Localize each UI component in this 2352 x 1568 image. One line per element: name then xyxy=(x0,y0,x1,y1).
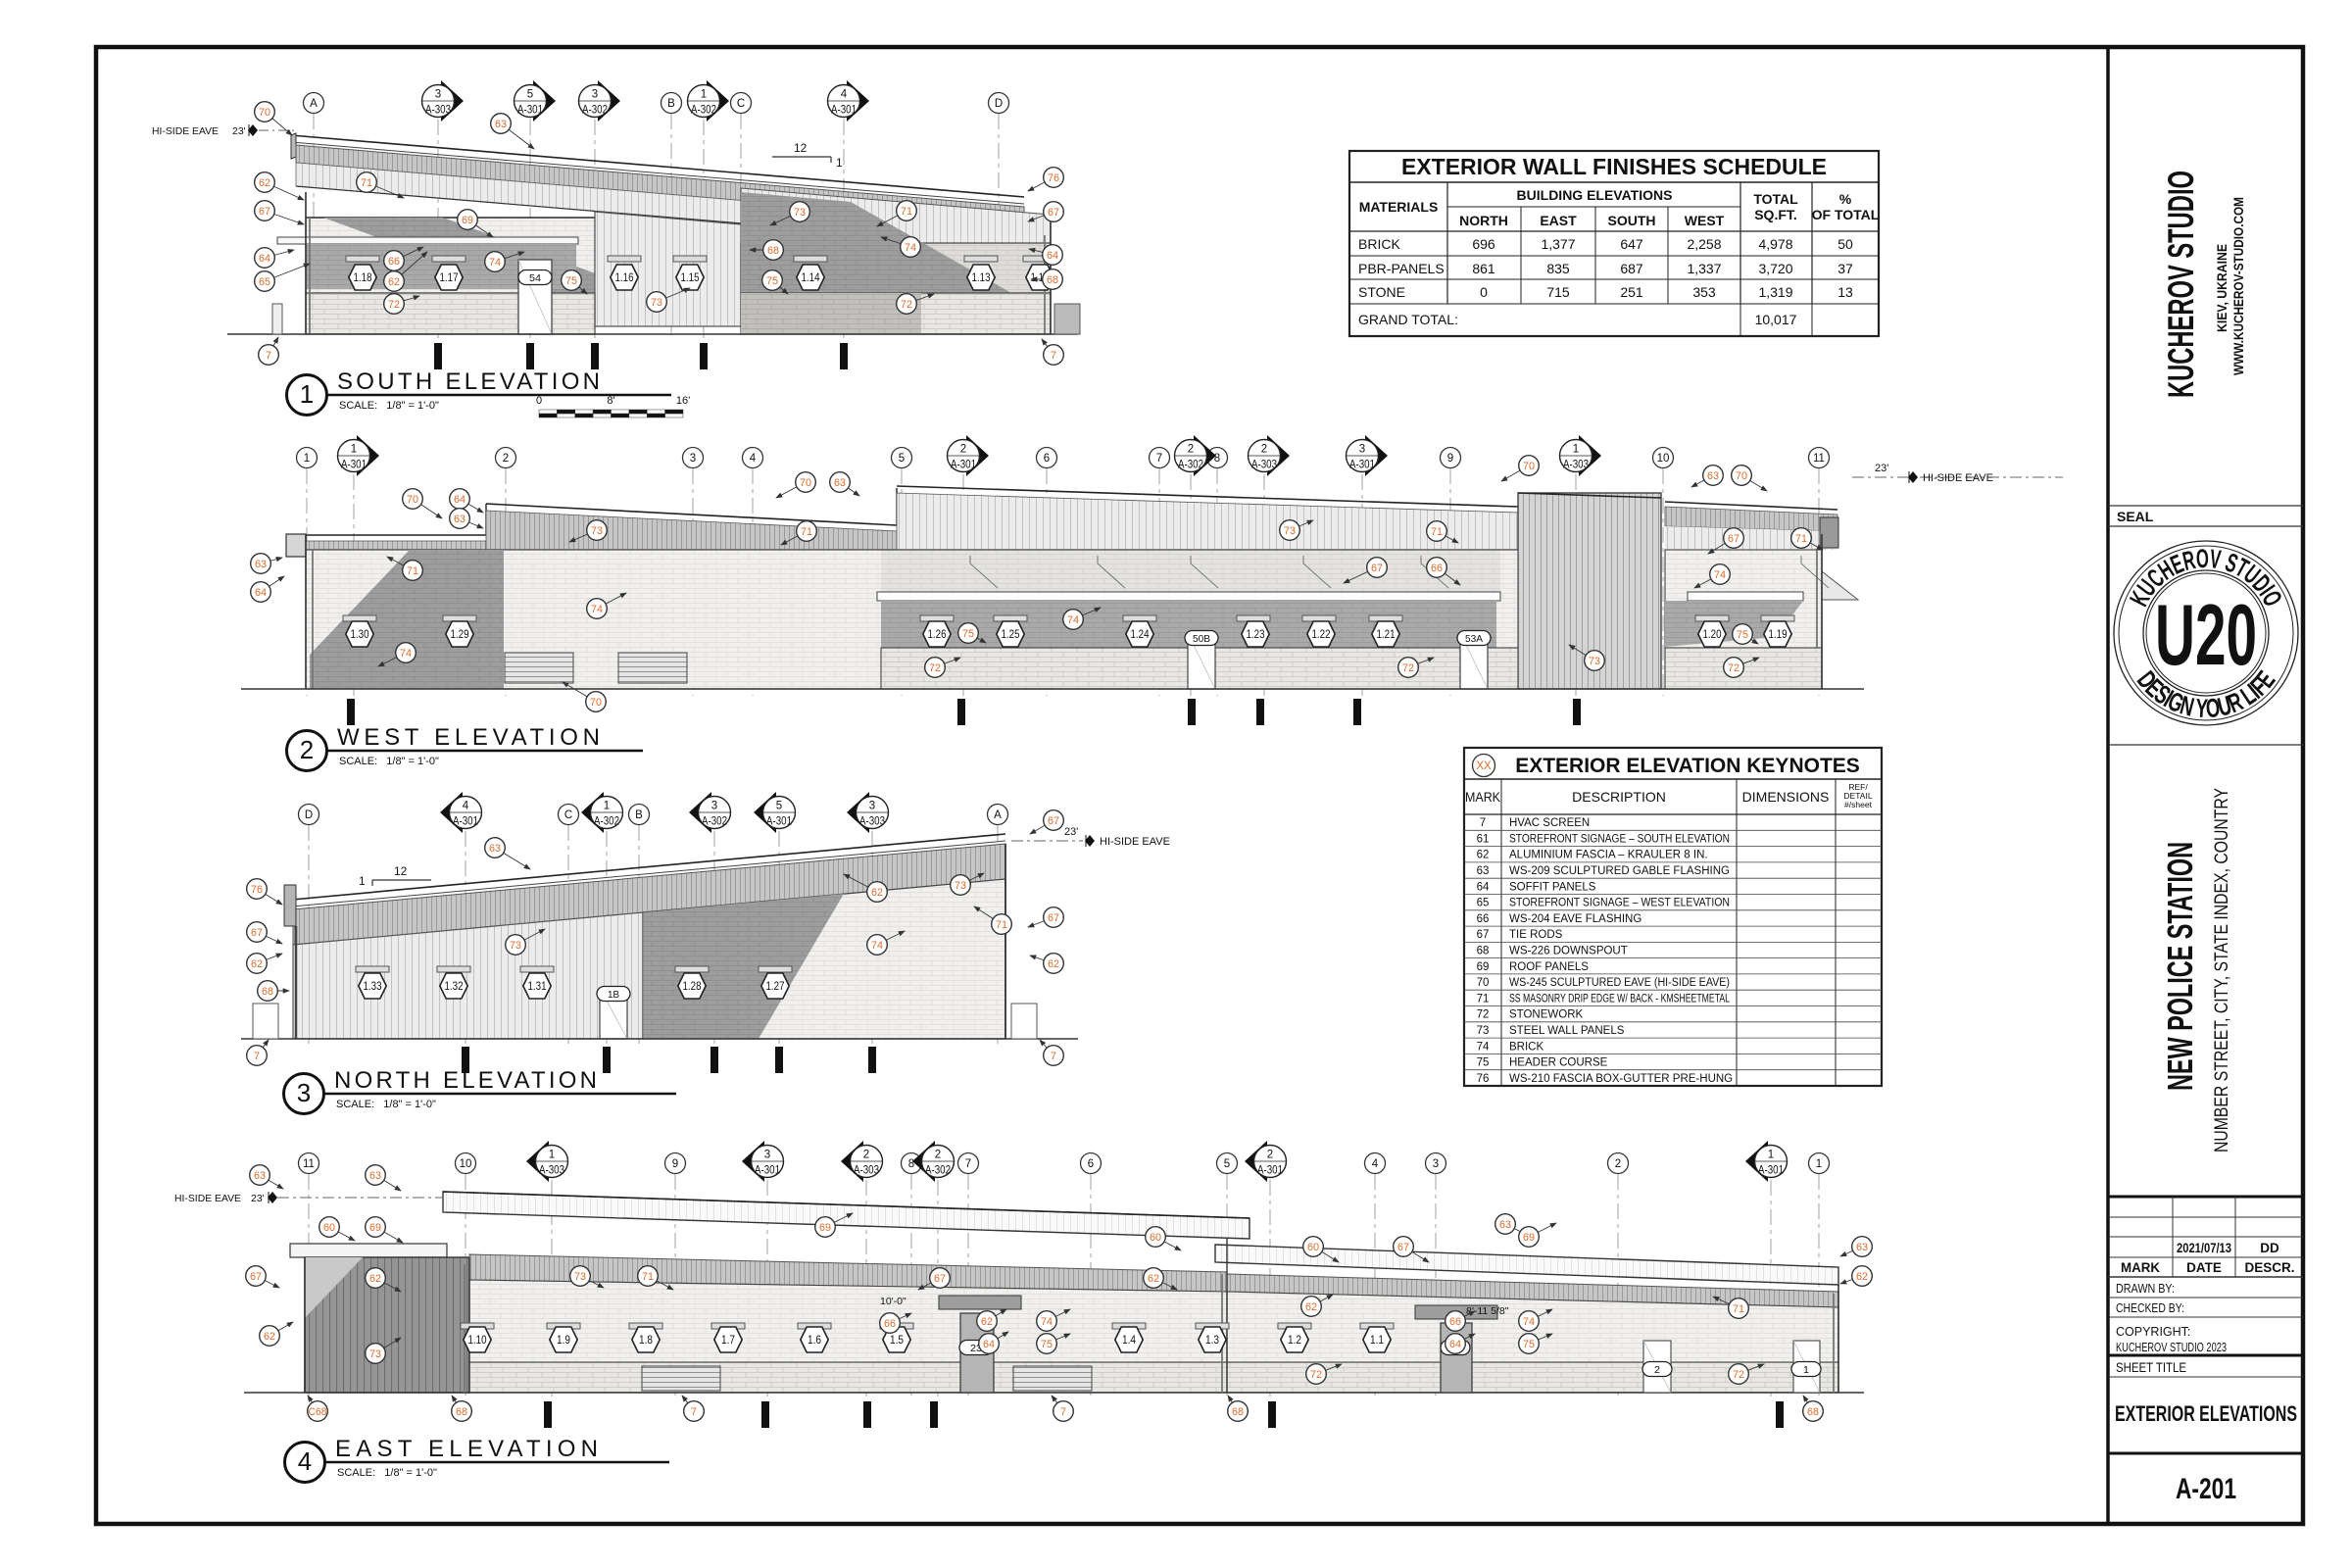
svg-text:2: 2 xyxy=(1654,1364,1660,1376)
svg-text:2: 2 xyxy=(1615,1158,1621,1170)
svg-text:69: 69 xyxy=(1523,1232,1535,1244)
svg-text:7: 7 xyxy=(691,1406,697,1418)
svg-text:74: 74 xyxy=(591,604,603,615)
svg-text:62: 62 xyxy=(1305,1301,1317,1313)
svg-text:A-302: A-302 xyxy=(691,105,716,117)
svg-text:16': 16' xyxy=(676,395,690,407)
svg-text:3: 3 xyxy=(435,89,441,101)
svg-text:63: 63 xyxy=(834,477,846,489)
svg-text:3: 3 xyxy=(690,453,696,465)
svg-text:NORTH: NORTH xyxy=(1459,213,1508,228)
svg-text:1.21: 1.21 xyxy=(1377,627,1396,641)
svg-text:ROOF PANELS: ROOF PANELS xyxy=(1509,961,1589,973)
svg-text:1: 1 xyxy=(836,156,843,170)
svg-text:BRICK: BRICK xyxy=(1509,1041,1543,1053)
svg-text:715: 715 xyxy=(1546,284,1570,300)
svg-text:STONEWORK: STONEWORK xyxy=(1509,1009,1584,1021)
svg-text:EAST: EAST xyxy=(1540,213,1577,228)
svg-text:A-303: A-303 xyxy=(859,816,885,828)
svg-text:STEEL WALL PANELS: STEEL WALL PANELS xyxy=(1509,1025,1625,1037)
svg-text:10'-0": 10'-0" xyxy=(880,1296,906,1307)
svg-text:XX: XX xyxy=(1476,760,1492,772)
svg-text:74: 74 xyxy=(1714,569,1726,581)
svg-text:1,337: 1,337 xyxy=(1687,261,1721,276)
svg-text:1: 1 xyxy=(359,874,366,888)
svg-text:EXTERIOR WALL FINISHES SCHEDUL: EXTERIOR WALL FINISHES SCHEDULE xyxy=(1401,154,1827,179)
svg-text:1.22: 1.22 xyxy=(1312,627,1331,641)
svg-text:68: 68 xyxy=(1232,1406,1244,1418)
svg-text:72: 72 xyxy=(901,299,912,311)
svg-text:65: 65 xyxy=(259,276,270,288)
svg-text:DRAWN BY:: DRAWN BY: xyxy=(2116,1282,2175,1296)
svg-text:71: 71 xyxy=(801,526,812,538)
svg-text:1.13: 1.13 xyxy=(972,270,991,284)
svg-text:1: 1 xyxy=(604,801,610,812)
svg-text:3: 3 xyxy=(297,1078,311,1107)
svg-text:23': 23' xyxy=(1064,826,1078,838)
svg-text:70: 70 xyxy=(590,697,602,709)
svg-text:1: 1 xyxy=(1803,1364,1809,1376)
svg-text:MARK: MARK xyxy=(2121,1260,2160,1275)
svg-text:HI-SIDE EAVE: HI-SIDE EAVE xyxy=(1100,836,1170,848)
svg-text:2: 2 xyxy=(935,1150,941,1161)
svg-text:KUCHEROV STUDIO: KUCHEROV STUDIO xyxy=(2161,171,2201,398)
svg-text:64: 64 xyxy=(259,253,270,265)
svg-text:1,377: 1,377 xyxy=(1541,236,1575,252)
svg-text:0: 0 xyxy=(1480,284,1488,300)
svg-text:A-301: A-301 xyxy=(1257,1165,1283,1177)
svg-text:1.17: 1.17 xyxy=(440,270,459,284)
svg-text:71: 71 xyxy=(1431,526,1443,538)
svg-text:72: 72 xyxy=(929,662,941,674)
svg-text:2: 2 xyxy=(1261,444,1267,456)
svg-text:1: 1 xyxy=(351,444,357,456)
svg-text:1.25: 1.25 xyxy=(1002,627,1020,641)
svg-text:STOREFRONT SIGNAGE – SOUTH ELE: STOREFRONT SIGNAGE – SOUTH ELEVATION xyxy=(1509,833,1730,845)
svg-text:WS-209 SCULPTURED GABLE FLASHI: WS-209 SCULPTURED GABLE FLASHING xyxy=(1509,865,1730,877)
svg-text:4: 4 xyxy=(463,801,469,812)
svg-text:1.1: 1.1 xyxy=(1370,1333,1384,1347)
svg-text:A-301: A-301 xyxy=(766,816,792,828)
svg-text:4: 4 xyxy=(841,89,848,101)
svg-text:1.10: 1.10 xyxy=(468,1333,487,1347)
svg-text:1.26: 1.26 xyxy=(928,627,947,641)
svg-text:66: 66 xyxy=(388,256,400,268)
svg-text:70: 70 xyxy=(800,477,811,489)
svg-text:63: 63 xyxy=(1477,865,1490,877)
svg-text:HI-SIDE EAVE: HI-SIDE EAVE xyxy=(152,125,219,137)
svg-text:4,978: 4,978 xyxy=(1758,236,1792,252)
svg-text:9: 9 xyxy=(1447,453,1453,465)
svg-text:71: 71 xyxy=(1795,533,1807,545)
svg-text:3: 3 xyxy=(592,89,598,101)
svg-text:3,720: 3,720 xyxy=(1758,261,1792,276)
svg-text:66: 66 xyxy=(1449,1316,1461,1328)
svg-text:7: 7 xyxy=(1156,453,1162,465)
svg-text:64: 64 xyxy=(454,494,465,506)
svg-text:72: 72 xyxy=(388,299,400,311)
svg-text:4: 4 xyxy=(750,453,757,465)
svg-text:63: 63 xyxy=(369,1170,381,1182)
svg-text:72: 72 xyxy=(1310,1369,1322,1381)
svg-text:62: 62 xyxy=(251,958,263,970)
svg-text:2: 2 xyxy=(1267,1150,1273,1161)
svg-text:A-201: A-201 xyxy=(2176,1473,2236,1505)
svg-text:BUILDING ELEVATIONS: BUILDING ELEVATIONS xyxy=(1517,187,1673,203)
svg-text:1: 1 xyxy=(1768,1150,1774,1161)
svg-text:71: 71 xyxy=(1477,993,1490,1004)
svg-text:50B: 50B xyxy=(1193,633,1210,645)
svg-text:75: 75 xyxy=(565,275,577,287)
svg-text:67: 67 xyxy=(251,927,263,939)
svg-text:1B: 1B xyxy=(608,989,619,1001)
svg-text:C: C xyxy=(564,809,572,821)
svg-text:CHECKED BY:: CHECKED BY: xyxy=(2116,1301,2184,1315)
svg-text:DATE: DATE xyxy=(2186,1260,2222,1275)
svg-text:3: 3 xyxy=(869,801,875,812)
svg-text:1: 1 xyxy=(1573,444,1579,456)
svg-text:75: 75 xyxy=(1523,1339,1535,1350)
svg-text:WWW.KUCHEROV-STUDIO.COM: WWW.KUCHEROV-STUDIO.COM xyxy=(2231,197,2246,375)
svg-text:23': 23' xyxy=(1875,463,1888,474)
svg-text:1.28: 1.28 xyxy=(683,979,702,993)
svg-text:68: 68 xyxy=(262,986,273,998)
svg-text:6: 6 xyxy=(1088,1158,1094,1170)
svg-text:73: 73 xyxy=(591,525,603,537)
svg-text:75: 75 xyxy=(1477,1057,1490,1069)
svg-text:64: 64 xyxy=(1477,881,1490,893)
svg-text:63: 63 xyxy=(1856,1242,1868,1253)
svg-text:75: 75 xyxy=(1041,1339,1053,1350)
svg-text:8'-11 5/8": 8'-11 5/8" xyxy=(1466,1305,1509,1317)
svg-text:7: 7 xyxy=(266,350,271,362)
svg-text:NEW POLICE STATION: NEW POLICE STATION xyxy=(2160,842,2200,1091)
svg-text:ALUMINIUM FASCIA – KRAULER 8 I: ALUMINIUM FASCIA – KRAULER 8 IN. xyxy=(1509,850,1708,861)
svg-text:1.18: 1.18 xyxy=(354,270,372,284)
svg-text:A-301: A-301 xyxy=(341,460,367,471)
svg-text:353: 353 xyxy=(1692,284,1716,300)
svg-text:62: 62 xyxy=(1856,1271,1868,1283)
svg-text:71: 71 xyxy=(996,919,1007,931)
svg-text:TIE RODS: TIE RODS xyxy=(1509,929,1563,941)
svg-text:STONE: STONE xyxy=(1358,284,1405,300)
svg-text:MATERIALS: MATERIALS xyxy=(1359,199,1439,215)
svg-text:1: 1 xyxy=(1816,1158,1822,1170)
svg-text:68: 68 xyxy=(1477,946,1490,957)
svg-text:50: 50 xyxy=(1837,236,1853,252)
svg-text:62: 62 xyxy=(1048,958,1059,970)
svg-text:71: 71 xyxy=(1733,1303,1744,1315)
svg-text:73: 73 xyxy=(510,940,521,952)
svg-text:KUCHEROV STUDIO 2023: KUCHEROV STUDIO 2023 xyxy=(2116,1341,2227,1354)
svg-text:8: 8 xyxy=(1214,453,1220,465)
svg-text:67: 67 xyxy=(934,1273,946,1285)
svg-text:64: 64 xyxy=(1449,1339,1461,1350)
svg-text:A-303: A-303 xyxy=(539,1165,564,1177)
svg-text:SOUTH: SOUTH xyxy=(1608,213,1656,228)
svg-text:A-302: A-302 xyxy=(1178,460,1203,471)
svg-text:BRICK: BRICK xyxy=(1358,236,1400,252)
svg-text:A-301: A-301 xyxy=(517,105,543,117)
svg-text:B: B xyxy=(635,809,643,821)
svg-text:76: 76 xyxy=(1477,1073,1490,1085)
svg-text:HI-SIDE EAVE: HI-SIDE EAVE xyxy=(174,1193,241,1204)
svg-text:1.23: 1.23 xyxy=(1247,627,1265,641)
svg-text:71: 71 xyxy=(642,1271,654,1283)
svg-text:72: 72 xyxy=(1402,662,1414,674)
svg-text:73: 73 xyxy=(369,1348,381,1360)
svg-text:74: 74 xyxy=(1067,614,1079,626)
svg-text:63: 63 xyxy=(254,1170,266,1182)
svg-text:861: 861 xyxy=(1472,261,1495,276)
svg-text:1.8: 1.8 xyxy=(639,1333,653,1347)
svg-text:MARK: MARK xyxy=(1465,789,1501,805)
svg-text:A-301: A-301 xyxy=(755,1165,780,1177)
svg-text:1.30: 1.30 xyxy=(351,627,369,641)
svg-text:1.31: 1.31 xyxy=(528,979,547,993)
svg-text:A: A xyxy=(310,98,318,110)
svg-text:73: 73 xyxy=(794,207,806,219)
svg-text:67: 67 xyxy=(1048,912,1059,924)
svg-text:A-301: A-301 xyxy=(831,105,857,117)
svg-text:2: 2 xyxy=(863,1150,869,1161)
svg-text:69: 69 xyxy=(1477,961,1490,973)
svg-text:A-303: A-303 xyxy=(425,105,451,117)
svg-text:7: 7 xyxy=(254,1051,260,1062)
svg-text:11: 11 xyxy=(303,1158,315,1170)
svg-text:54: 54 xyxy=(529,272,541,284)
svg-text:73: 73 xyxy=(1284,525,1296,537)
svg-text:1.3: 1.3 xyxy=(1205,1333,1219,1347)
svg-text:1: 1 xyxy=(701,89,707,101)
svg-text:71: 71 xyxy=(901,206,912,218)
svg-text:HI-SIDE EAVE: HI-SIDE EAVE xyxy=(1923,472,1993,484)
svg-text:SCALE: 1/8" = 1'-0": SCALE: 1/8" = 1'-0" xyxy=(337,1467,437,1479)
svg-text:63: 63 xyxy=(454,514,465,525)
svg-text:7: 7 xyxy=(965,1158,971,1170)
svg-text:68: 68 xyxy=(1047,274,1058,286)
svg-text:0: 0 xyxy=(536,395,542,407)
svg-text:EXTERIOR ELEVATION KEYNOTES: EXTERIOR ELEVATION KEYNOTES xyxy=(1515,755,1860,777)
svg-text:65: 65 xyxy=(1477,898,1490,909)
svg-text:WS-226 DOWNSPOUT: WS-226 DOWNSPOUT xyxy=(1509,946,1628,957)
svg-text:67: 67 xyxy=(1048,207,1059,219)
svg-text:68: 68 xyxy=(1807,1406,1819,1418)
svg-text:647: 647 xyxy=(1620,236,1643,252)
svg-text:70: 70 xyxy=(407,494,418,506)
svg-text:67: 67 xyxy=(259,206,270,218)
svg-text:74: 74 xyxy=(871,940,883,952)
svg-text:DESCRIPTION: DESCRIPTION xyxy=(1572,789,1666,805)
svg-text:1.5: 1.5 xyxy=(890,1333,904,1347)
svg-text:1.27: 1.27 xyxy=(766,979,785,993)
svg-text:D: D xyxy=(995,98,1003,110)
svg-text:74: 74 xyxy=(1041,1316,1053,1328)
svg-text:62: 62 xyxy=(369,1273,381,1285)
svg-text:60: 60 xyxy=(323,1222,335,1234)
svg-text:60: 60 xyxy=(1307,1242,1319,1253)
svg-text:53A: 53A xyxy=(1465,633,1483,645)
svg-text:72: 72 xyxy=(1728,662,1739,674)
svg-text:62: 62 xyxy=(1477,850,1490,861)
svg-text:64: 64 xyxy=(1047,250,1058,262)
svg-text:A-301: A-301 xyxy=(1758,1165,1784,1177)
svg-text:72: 72 xyxy=(1733,1369,1744,1381)
svg-text:73: 73 xyxy=(574,1271,586,1283)
svg-text:74: 74 xyxy=(489,257,501,269)
svg-text:DD: DD xyxy=(2260,1241,2279,1255)
svg-text:KIEV, UKRAINE: KIEV, UKRAINE xyxy=(2215,244,2229,332)
svg-text:7: 7 xyxy=(1051,1051,1056,1062)
svg-text:U20: U20 xyxy=(2155,586,2257,683)
svg-text:2,258: 2,258 xyxy=(1687,236,1721,252)
svg-text:13: 13 xyxy=(1837,284,1853,300)
svg-text:61: 61 xyxy=(1477,833,1490,845)
svg-text:WS-204 EAVE FLASHING: WS-204 EAVE FLASHING xyxy=(1509,913,1641,925)
svg-text:1.9: 1.9 xyxy=(557,1333,570,1347)
svg-text:1,319: 1,319 xyxy=(1758,284,1792,300)
svg-text:1.14: 1.14 xyxy=(802,270,820,284)
svg-text:COPYRIGHT:: COPYRIGHT: xyxy=(2116,1325,2190,1339)
svg-text:23': 23' xyxy=(232,125,246,137)
svg-text:63: 63 xyxy=(255,559,267,570)
svg-text:1.24: 1.24 xyxy=(1131,627,1150,641)
svg-text:66: 66 xyxy=(1431,563,1443,574)
svg-text:#/sheet: #/sheet xyxy=(1844,800,1873,809)
svg-text:DESCR.: DESCR. xyxy=(2244,1260,2294,1275)
svg-text:2: 2 xyxy=(1188,444,1194,456)
svg-text:66: 66 xyxy=(1477,913,1490,925)
svg-text:9: 9 xyxy=(672,1158,678,1170)
svg-text:5: 5 xyxy=(527,89,533,101)
svg-text:PBR-PANELS: PBR-PANELS xyxy=(1358,261,1445,276)
svg-text:67: 67 xyxy=(1371,563,1383,574)
svg-text:4: 4 xyxy=(1372,1158,1379,1170)
svg-text:WS-210 FASCIA BOX-GUTTER PRE-H: WS-210 FASCIA BOX-GUTTER PRE-HUNG xyxy=(1509,1073,1733,1085)
svg-text:A-302: A-302 xyxy=(594,816,619,828)
svg-text:3: 3 xyxy=(1433,1158,1439,1170)
svg-text:66: 66 xyxy=(884,1318,896,1330)
svg-text:8: 8 xyxy=(908,1158,914,1170)
svg-text:1.2: 1.2 xyxy=(1288,1333,1301,1347)
svg-text:69: 69 xyxy=(462,215,473,226)
svg-text:A: A xyxy=(994,809,1002,821)
svg-text:76: 76 xyxy=(1048,172,1059,184)
svg-text:A-303: A-303 xyxy=(1251,460,1277,471)
svg-text:SEAL: SEAL xyxy=(2117,509,2154,524)
svg-text:73: 73 xyxy=(651,297,662,309)
svg-text:70: 70 xyxy=(1523,461,1535,472)
svg-text:WS-245 SCULPTURED EAVE (HI-SID: WS-245 SCULPTURED EAVE (HI-SIDE EAVE) xyxy=(1509,977,1730,989)
svg-text:7: 7 xyxy=(1480,817,1486,829)
svg-text:SCALE: 1/8" = 1'-0": SCALE: 1/8" = 1'-0" xyxy=(339,756,439,767)
svg-text:A-301: A-301 xyxy=(951,460,976,471)
svg-text:71: 71 xyxy=(407,565,418,577)
svg-text:HEADER COURSE: HEADER COURSE xyxy=(1509,1057,1608,1069)
svg-text:1.33: 1.33 xyxy=(364,979,382,993)
svg-text:GRAND TOTAL:: GRAND TOTAL: xyxy=(1358,312,1458,327)
svg-text:2: 2 xyxy=(300,735,314,764)
svg-text:2: 2 xyxy=(503,453,509,465)
svg-text:10,017: 10,017 xyxy=(1755,312,1797,327)
svg-text:1.29: 1.29 xyxy=(451,627,469,641)
svg-text:62: 62 xyxy=(1148,1273,1159,1285)
svg-text:WEST: WEST xyxy=(1685,213,1725,228)
svg-text:72: 72 xyxy=(1477,1009,1490,1021)
svg-text:696: 696 xyxy=(1472,236,1495,252)
svg-text:62: 62 xyxy=(259,177,270,189)
svg-text:67: 67 xyxy=(250,1271,262,1283)
svg-text:1.7: 1.7 xyxy=(721,1333,735,1347)
svg-text:C: C xyxy=(737,98,745,110)
svg-text:74: 74 xyxy=(1523,1316,1535,1328)
svg-text:10: 10 xyxy=(1657,453,1670,465)
svg-text:1.15: 1.15 xyxy=(681,270,700,284)
svg-text:75: 75 xyxy=(766,275,778,287)
svg-text:SQ.FT.: SQ.FT. xyxy=(1754,207,1797,222)
svg-text:73: 73 xyxy=(955,880,966,892)
svg-text:75: 75 xyxy=(962,628,974,640)
svg-text:A-303: A-303 xyxy=(1563,460,1589,471)
svg-text:10: 10 xyxy=(460,1158,472,1170)
svg-text:62: 62 xyxy=(871,887,883,899)
svg-text:62: 62 xyxy=(264,1331,275,1343)
svg-text:1.6: 1.6 xyxy=(808,1333,821,1347)
svg-text:70: 70 xyxy=(259,107,270,119)
svg-text:63: 63 xyxy=(1707,470,1719,482)
svg-text:1.4: 1.4 xyxy=(1122,1333,1136,1347)
svg-text:63: 63 xyxy=(1499,1219,1511,1231)
svg-text:69: 69 xyxy=(819,1222,831,1234)
svg-text:687: 687 xyxy=(1620,261,1643,276)
svg-text:67: 67 xyxy=(1397,1242,1409,1253)
svg-text:2021/07/13: 2021/07/13 xyxy=(2177,1241,2231,1255)
svg-text:A-303: A-303 xyxy=(854,1165,879,1177)
svg-text:71: 71 xyxy=(361,177,372,189)
svg-text:75: 75 xyxy=(1737,629,1748,641)
svg-text:5: 5 xyxy=(1224,1158,1230,1170)
svg-text:STOREFRONT SIGNAGE – WEST ELEV: STOREFRONT SIGNAGE – WEST ELEVATION xyxy=(1509,898,1730,909)
svg-text:1.20: 1.20 xyxy=(1703,627,1722,641)
svg-text:67: 67 xyxy=(1477,929,1490,941)
svg-text:70: 70 xyxy=(1736,470,1747,482)
svg-text:5: 5 xyxy=(899,453,905,465)
svg-text:A-301: A-301 xyxy=(453,816,478,828)
svg-text:%: % xyxy=(1839,191,1852,207)
svg-text:3: 3 xyxy=(764,1150,770,1161)
svg-text:SS MASONRY DRIP EDGE W/ BACK -: SS MASONRY DRIP EDGE W/ BACK - KMSHEETME… xyxy=(1509,993,1730,1004)
svg-text:251: 251 xyxy=(1620,284,1643,300)
svg-text:63: 63 xyxy=(495,119,507,130)
svg-text:7: 7 xyxy=(1051,350,1056,362)
svg-text:64: 64 xyxy=(255,587,267,599)
svg-text:64: 64 xyxy=(983,1339,995,1350)
svg-text:1: 1 xyxy=(300,379,314,409)
svg-text:A-301: A-301 xyxy=(1349,460,1375,471)
svg-text:23': 23' xyxy=(251,1193,265,1204)
svg-text:68: 68 xyxy=(456,1406,467,1418)
svg-text:11: 11 xyxy=(1813,453,1825,465)
svg-text:1.19: 1.19 xyxy=(1769,627,1788,641)
svg-text:8': 8' xyxy=(607,395,614,407)
svg-text:C68: C68 xyxy=(309,1406,327,1418)
svg-text:EXTERIOR ELEVATIONS: EXTERIOR ELEVATIONS xyxy=(2115,1401,2297,1426)
svg-text:67: 67 xyxy=(1048,815,1059,827)
svg-text:74: 74 xyxy=(400,648,412,660)
svg-text:HVAC SCREEN: HVAC SCREEN xyxy=(1509,817,1590,829)
svg-text:D: D xyxy=(305,809,313,821)
svg-text:A-302: A-302 xyxy=(702,816,727,828)
